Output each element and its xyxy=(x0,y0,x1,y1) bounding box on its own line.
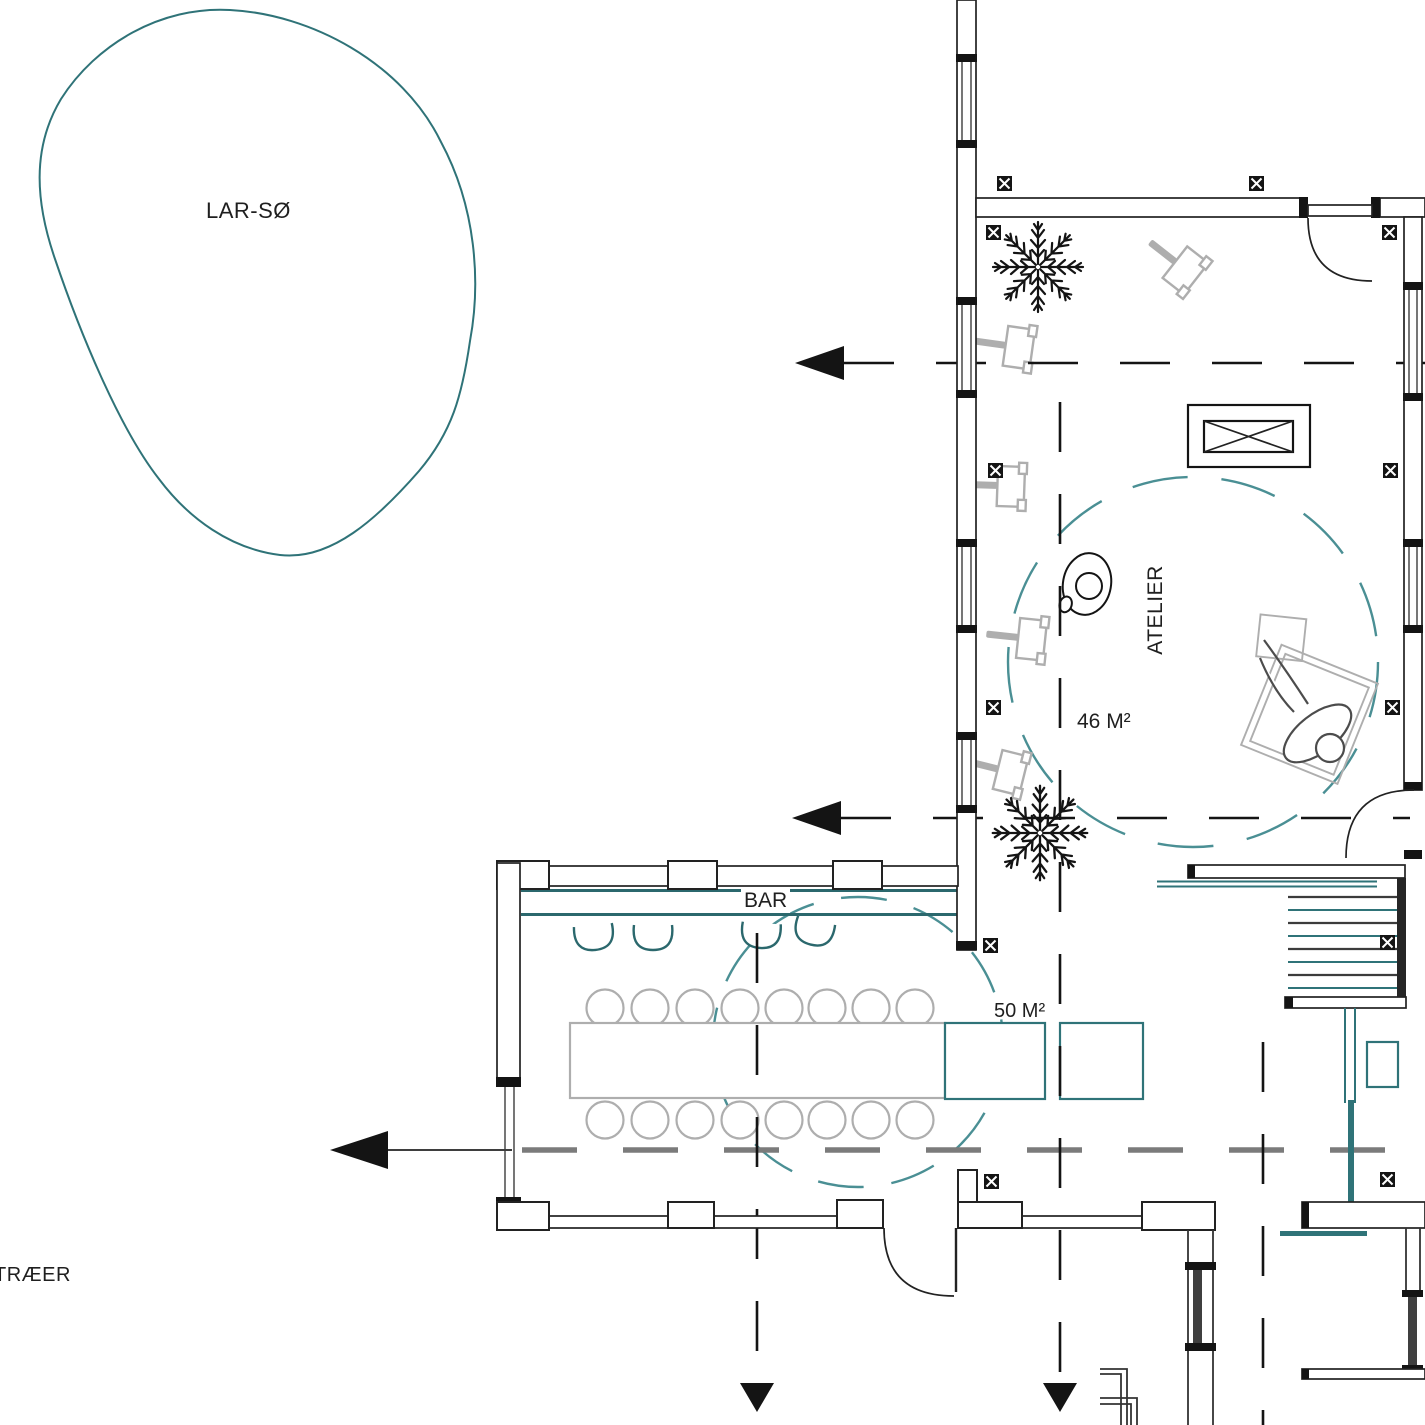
stool-icon xyxy=(634,925,673,950)
skylight-inner xyxy=(1204,421,1293,452)
wall-bottom-right xyxy=(1280,1202,1425,1379)
plant-icon xyxy=(993,222,1083,312)
stool-icon xyxy=(792,916,836,950)
column-marker-icon xyxy=(1383,463,1398,478)
area-label-atelier: 46 M² xyxy=(1077,710,1131,734)
easel-icon xyxy=(970,318,1037,374)
person-working-figure xyxy=(1241,614,1378,783)
wall-atelier-top xyxy=(976,198,1300,217)
door-swing-icon xyxy=(1299,197,1380,281)
wall-atelier-top xyxy=(1380,198,1425,217)
column-marker-icon xyxy=(988,463,1003,478)
column-marker-icon xyxy=(986,700,1001,715)
column-marker-icon xyxy=(986,225,1001,240)
easel-icon xyxy=(1135,224,1213,299)
column-marker-icon xyxy=(983,938,998,953)
column-marker-icon xyxy=(1385,700,1400,715)
wall-bar-bottom xyxy=(497,1170,1215,1230)
trees-label: TRÆER xyxy=(0,1264,71,1287)
room-label-bar: BAR xyxy=(741,889,790,913)
section-line-upper xyxy=(795,346,1425,380)
column-marker-icon xyxy=(997,176,1012,191)
chair-row-bottom xyxy=(587,1102,934,1139)
bar-counter xyxy=(521,889,957,892)
shaft-box xyxy=(1367,1042,1398,1087)
section-line-vertical-mid xyxy=(1043,402,1077,1412)
door-swing-icon xyxy=(884,1228,956,1296)
side-table-teal xyxy=(945,1023,1045,1099)
side-table-teal xyxy=(1060,1023,1143,1099)
wall-bar-left xyxy=(496,863,521,1207)
wall-atelier-right xyxy=(1404,217,1422,790)
door-swing-icon xyxy=(1346,782,1422,859)
room-label-atelier: ATELIER xyxy=(1144,554,1168,666)
section-line-middle xyxy=(792,801,1410,835)
column-marker-icon xyxy=(1380,1172,1395,1187)
wall-corner-outside xyxy=(1100,1369,1137,1425)
easel-icon xyxy=(984,611,1050,665)
stool-icon xyxy=(741,922,781,950)
chair-row-top xyxy=(587,990,934,1027)
column-marker-icon xyxy=(1382,225,1397,240)
lake-outline xyxy=(40,10,476,556)
floor-plan: LAR-SØ ATELIER 46 M² BAR 50 M² TRÆER xyxy=(0,0,1425,1425)
person-seated-figure xyxy=(1057,549,1116,618)
area-label-bar: 50 M² xyxy=(994,1000,1045,1023)
wall-corridor xyxy=(1185,1230,1216,1425)
column-marker-icon xyxy=(1380,935,1395,950)
lake-label: LAR-SØ xyxy=(206,198,291,224)
wall-bar-top xyxy=(497,866,958,886)
bar-counter-front xyxy=(521,913,957,916)
column-marker-icon xyxy=(984,1174,999,1189)
stairs-icon xyxy=(1157,865,1406,1008)
column-marker-icon xyxy=(1249,176,1264,191)
stool-icon xyxy=(574,923,615,952)
plant-icon xyxy=(993,786,1088,881)
